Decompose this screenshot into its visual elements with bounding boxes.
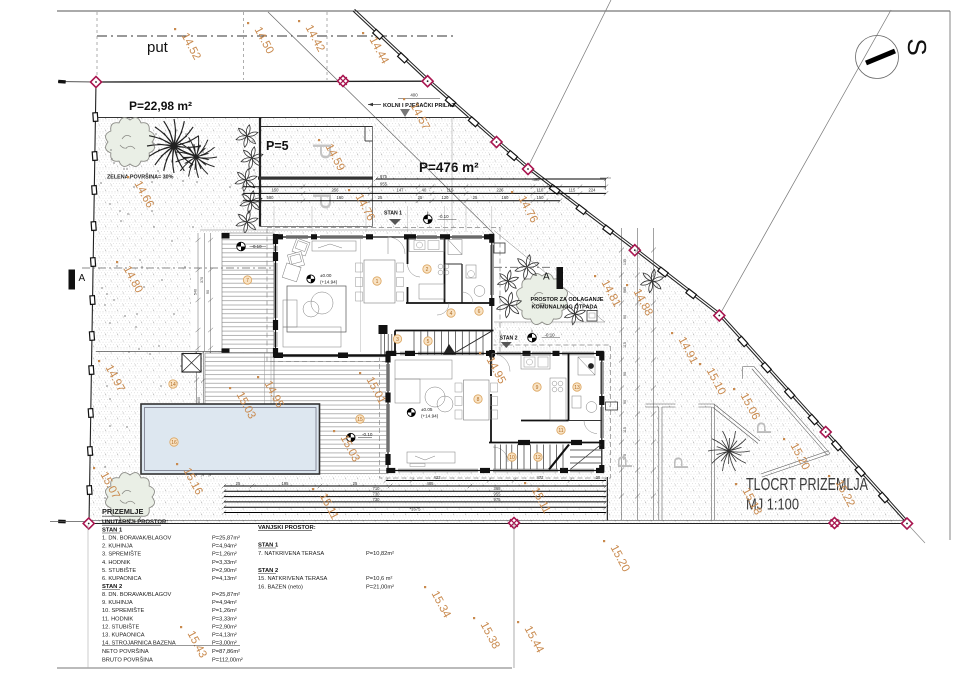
svg-text:90: 90: [206, 290, 210, 294]
svg-text:P=3,33m²: P=3,33m²: [212, 616, 237, 622]
svg-text:368: 368: [494, 486, 502, 491]
svg-text:BRUTO POVRŠINA: BRUTO POVRŠINA: [102, 657, 153, 664]
svg-text:115: 115: [569, 188, 576, 193]
svg-text:STAN 2: STAN 2: [102, 584, 122, 590]
svg-text:P: P: [615, 455, 637, 468]
svg-text:400: 400: [410, 93, 418, 98]
svg-text:5. STUBIŠTE: 5. STUBIŠTE: [102, 567, 136, 574]
svg-text:423: 423: [434, 475, 442, 480]
svg-text:3. SPREMIŠTE: 3. SPREMIŠTE: [102, 551, 141, 558]
svg-text:P=10,6 m²: P=10,6 m²: [366, 576, 393, 582]
svg-text:VANJSKI PROSTOR:: VANJSKI PROSTOR:: [258, 525, 316, 531]
svg-text:224: 224: [589, 188, 597, 193]
svg-text:P=112,00m²: P=112,00m²: [212, 658, 243, 664]
svg-text:A: A: [79, 273, 86, 284]
svg-text:7. NATKRIVENA TERASA: 7. NATKRIVENA TERASA: [258, 551, 324, 557]
svg-text:115: 115: [623, 342, 627, 348]
svg-text:6: 6: [478, 309, 481, 315]
svg-text:160: 160: [337, 195, 345, 200]
svg-text:975: 975: [380, 174, 388, 179]
svg-text:4. HODNIK: 4. HODNIK: [102, 560, 131, 566]
svg-text:A: A: [543, 271, 550, 282]
svg-text:P: P: [671, 456, 693, 469]
svg-text:PROSTOR ZA ODLAGANJE: PROSTOR ZA ODLAGANJE: [531, 297, 604, 303]
svg-text:15. NATKRIVENA TERASA: 15. NATKRIVENA TERASA: [258, 576, 328, 582]
svg-text:P=87,86m²: P=87,86m²: [212, 649, 240, 655]
svg-text:STAN 2: STAN 2: [500, 336, 518, 342]
svg-text:S: S: [902, 38, 932, 55]
svg-text:580: 580: [267, 195, 275, 200]
svg-text:10. SPREMIŠTE: 10. SPREMIŠTE: [102, 607, 145, 614]
svg-text:P=4,94m²: P=4,94m²: [212, 544, 237, 550]
svg-text:(+14.94): (+14.94): [421, 414, 439, 419]
svg-text:135: 135: [623, 259, 627, 265]
svg-text:P=4,13m²: P=4,13m²: [212, 633, 237, 639]
svg-text:160: 160: [502, 195, 510, 200]
svg-text:P=21,00m²: P=21,00m²: [366, 585, 394, 591]
svg-text:150: 150: [272, 188, 280, 193]
svg-text:P=25,87m²: P=25,87m²: [212, 592, 240, 598]
svg-text:955: 955: [494, 492, 502, 497]
svg-text:110: 110: [537, 188, 544, 193]
svg-text:40: 40: [422, 188, 427, 193]
svg-text:147: 147: [397, 188, 405, 193]
svg-text:±0.05: ±0.05: [421, 407, 433, 412]
svg-text:115: 115: [447, 188, 454, 193]
svg-text:115: 115: [623, 427, 627, 433]
svg-text:15: 15: [357, 417, 363, 423]
svg-text:6. KUPAONICA: 6. KUPAONICA: [102, 576, 142, 582]
svg-text:P=4,13m²: P=4,13m²: [212, 576, 237, 582]
svg-text:120: 120: [442, 195, 450, 200]
svg-text:PRIZEMLJE: PRIZEMLJE: [102, 507, 144, 516]
svg-text:P=5: P=5: [266, 139, 289, 153]
svg-text:90: 90: [623, 372, 627, 376]
svg-text:STAN 1: STAN 1: [102, 528, 123, 534]
svg-text:P=3,33m²: P=3,33m²: [212, 560, 237, 566]
svg-text:2: 2: [426, 267, 429, 273]
svg-text:730: 730: [373, 497, 381, 502]
svg-text:2. KUHINJA: 2. KUHINJA: [102, 544, 133, 550]
svg-text:975: 975: [494, 497, 502, 502]
svg-text:370: 370: [200, 277, 204, 283]
svg-text:1: 1: [376, 279, 379, 285]
svg-text:STAN 2: STAN 2: [258, 568, 278, 574]
svg-text:90: 90: [623, 315, 627, 319]
svg-text:10: 10: [509, 455, 515, 461]
svg-text:(+14.94): (+14.94): [320, 280, 338, 285]
svg-text:195: 195: [282, 481, 290, 486]
svg-text:540: 540: [194, 289, 198, 295]
svg-text:-0.10: -0.10: [439, 214, 450, 219]
svg-text:P=1,26m²: P=1,26m²: [212, 552, 237, 558]
svg-text:9. KUHINJA: 9. KUHINJA: [102, 600, 133, 606]
svg-text:P=1,26m²: P=1,26m²: [212, 608, 237, 614]
svg-text:11: 11: [558, 428, 563, 434]
svg-text:25: 25: [418, 195, 423, 200]
svg-text:16: 16: [171, 440, 177, 446]
svg-text:KOMUNALNOG OTPADA: KOMUNALNOG OTPADA: [532, 305, 598, 311]
svg-text:90: 90: [623, 400, 627, 404]
svg-text:13: 13: [574, 385, 580, 391]
svg-text:P=4,94m²: P=4,94m²: [212, 600, 237, 606]
svg-text:13. KUPAONICA: 13. KUPAONICA: [102, 633, 145, 639]
svg-text:12: 12: [535, 455, 541, 461]
svg-text:STAN 1: STAN 1: [384, 211, 402, 217]
svg-text:800: 800: [197, 397, 201, 403]
svg-text:25: 25: [236, 481, 241, 486]
svg-text:P=476 m²: P=476 m²: [419, 160, 479, 175]
svg-text:730: 730: [373, 492, 381, 497]
svg-text:710: 710: [373, 486, 381, 491]
svg-text:150: 150: [537, 195, 545, 200]
svg-text:25: 25: [353, 481, 358, 486]
svg-text:*1675: *1675: [410, 507, 422, 512]
svg-text:256: 256: [332, 188, 340, 193]
svg-text:9: 9: [536, 385, 539, 391]
svg-text:8: 8: [477, 397, 480, 403]
svg-text:3: 3: [396, 337, 399, 343]
svg-text:8. DN. BORAVAK/BLAGOV: 8. DN. BORAVAK/BLAGOV: [102, 592, 172, 598]
svg-text:P=10,82m²: P=10,82m²: [366, 551, 394, 557]
svg-text:P=25,87m²: P=25,87m²: [212, 536, 240, 542]
svg-text:NETO POVRŠINA: NETO POVRŠINA: [102, 648, 149, 655]
svg-text:25: 25: [378, 195, 383, 200]
svg-text:put: put: [147, 39, 169, 56]
svg-text:25: 25: [596, 475, 601, 480]
svg-text:472: 472: [537, 475, 545, 480]
svg-text:STAN 1: STAN 1: [258, 543, 279, 549]
svg-text:25: 25: [566, 195, 571, 200]
svg-text:-0.10: -0.10: [545, 333, 556, 338]
svg-text:1. DN. BORAVAK/BLAGOV: 1. DN. BORAVAK/BLAGOV: [102, 536, 172, 542]
svg-text:P: P: [754, 421, 776, 434]
svg-text:UNUTARNJI PROSTOR:: UNUTARNJI PROSTOR:: [102, 520, 168, 526]
svg-text:985: 985: [623, 287, 627, 293]
svg-text:P=2,90m²: P=2,90m²: [212, 624, 237, 630]
svg-text:4: 4: [450, 311, 453, 317]
svg-text:12. STUBIŠTE: 12. STUBIŠTE: [102, 623, 140, 630]
svg-text:-0.10: -0.10: [362, 432, 373, 437]
svg-text:955: 955: [380, 182, 388, 187]
svg-text:16. BAZEN (neto): 16. BAZEN (neto): [258, 585, 303, 591]
svg-text:485: 485: [427, 481, 435, 486]
svg-text:5: 5: [427, 339, 430, 345]
svg-text:11. HODNIK: 11. HODNIK: [102, 616, 133, 622]
svg-text:14: 14: [170, 382, 176, 388]
svg-text:P=2,90m²: P=2,90m²: [212, 568, 237, 574]
svg-text:±0.00: ±0.00: [320, 273, 332, 278]
svg-text:490: 490: [533, 177, 541, 182]
svg-text:226: 226: [497, 188, 505, 193]
svg-text:P=22,98 m²: P=22,98 m²: [129, 99, 192, 113]
svg-text:7: 7: [246, 278, 249, 284]
svg-text:25: 25: [473, 195, 478, 200]
